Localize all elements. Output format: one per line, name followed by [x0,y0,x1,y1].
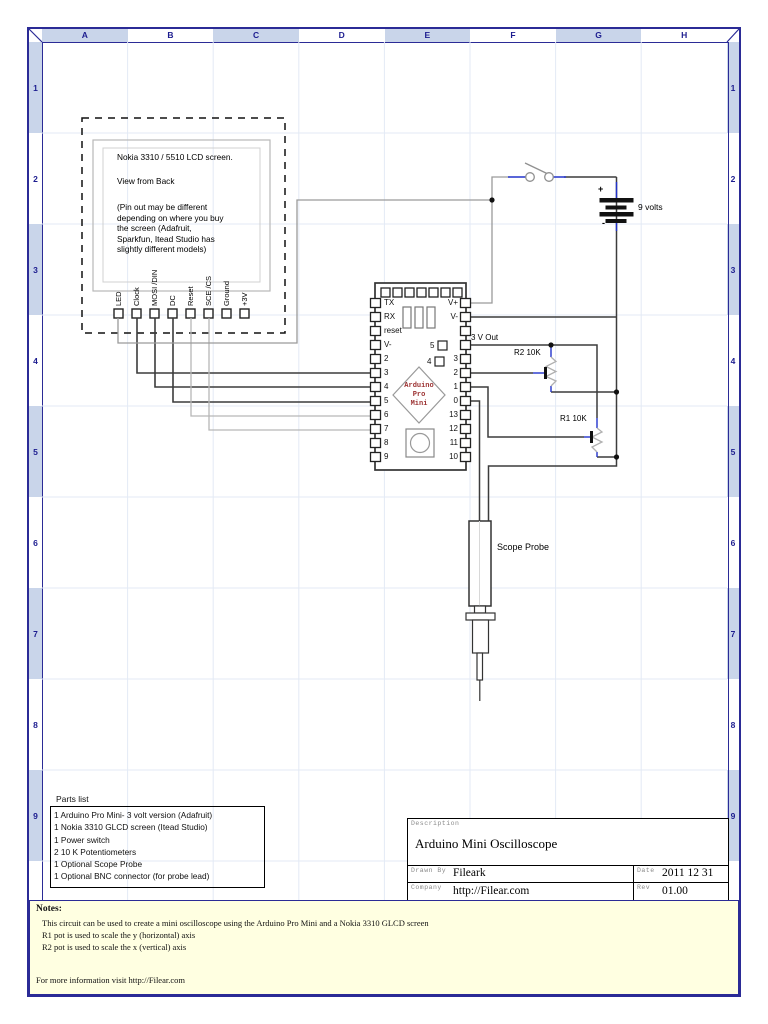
rev-value: 01.00 [662,885,688,897]
notes-lines: This circuit can be used to create a min… [42,917,429,953]
parts-list: 1 Arduino Pro Mini- 3 volt version (Adaf… [50,806,265,888]
company-value: http://Filear.com [453,885,529,897]
lcd-pin-label: Reset [186,246,196,306]
corner-diagonals [29,29,739,42]
date-label: Date [637,867,655,874]
arduino-pin-label: V- [375,310,458,324]
rev-label: Rev [637,884,650,891]
potentiometer-r1 [592,428,602,452]
arduino-pin-label: 13 [375,408,458,422]
lcd-pin-label: LED [114,246,124,306]
lcd-pin-label: +3V [240,246,250,306]
lcd-pin-label: Ground [222,246,232,306]
lcd-subtitle: View from Back [117,176,265,187]
scope-probe-label: Scope Probe [497,542,549,552]
battery-minus: - [602,218,605,228]
lcd-pin-label: MOSI /DIN [150,246,160,306]
r1-label: R1 10K [560,414,587,423]
notes-line: This circuit can be used to create a min… [42,917,429,929]
arduino-pin-label: 12 [375,422,458,436]
wire-dark-right [471,177,617,521]
description-label: Description [411,820,459,827]
arduino-pin-label [375,338,458,352]
notes-footer: For more information visit http://Filear… [36,975,185,985]
drawn-by-value: Fileark [453,867,486,879]
drawn-by-cell: Drawn By Fileark [408,865,634,882]
lcd-pin-label: Clock [132,246,142,306]
arduino-pin-label: 11 [375,436,458,450]
notes-line: R2 pot is used to scale the x (vertical)… [42,941,429,953]
v-out-label: 3 V Out [471,333,498,342]
junction-dots [489,197,619,459]
r2-label: R2 10K [514,348,541,357]
arduino-pin-label: 10 [375,450,458,464]
description-cell: Description Arduino Mini Oscilloscope [408,819,728,865]
rev-cell: Rev 01.00 [634,882,728,900]
battery-plus: + [598,184,603,194]
date-value: 2011 12 31 [662,867,713,879]
parts-list-item: 2 10 K Potentiometers [51,846,264,858]
schematic-page: ABCDEFGH 123456789 123456789 [0,0,768,1024]
parts-list-item: 1 Power switch [51,834,264,846]
lcd-title: Nokia 3310 / 5510 LCD screen. [117,152,265,163]
arduino-pin-label: 3 [375,352,458,366]
arduino-right-pin-labels: V+V-321013121110 [375,296,458,464]
power-switch-icon [525,163,553,181]
lcd-description: Nokia 3310 / 5510 LCD screen. View from … [117,152,265,255]
date-cell: Date 2011 12 31 [634,865,728,882]
parts-list-item: 1 Optional BNC connector (for probe lead… [51,870,264,882]
potentiometer-r2 [546,357,556,386]
notes-panel: Notes: This circuit can be used to creat… [29,900,739,995]
parts-list-item: 1 Nokia 3310 GLCD screen (Itead Studio) [51,821,264,833]
notes-line: R1 pot is used to scale the y (horizonta… [42,929,429,941]
arduino-pin-label: V+ [375,296,458,310]
drawn-by-label: Drawn By [411,867,446,874]
arduino-inner-pin-label-4: 4 [427,357,431,366]
description-value: Arduino Mini Oscilloscope [415,836,557,852]
wire-lcd-data [137,318,371,402]
parts-list-item: 1 Arduino Pro Mini- 3 volt version (Adaf… [51,807,264,821]
lcd-pin-label: SCE /CS [204,246,214,306]
title-block: Description Arduino Mini Oscilloscope Dr… [407,818,729,901]
arduino-pin-label [375,324,458,338]
company-cell: Company http://Filear.com [408,882,634,900]
wire-lcd-control [191,318,371,430]
parts-list-title: Parts list [56,794,89,804]
chip-name: Arduino Pro Mini [393,382,445,409]
company-label: Company [411,884,442,891]
battery-label: 9 volts [638,202,663,212]
notes-heading: Notes: [36,904,62,914]
lcd-pin-label: DC [168,246,178,306]
arduino-inner-pin-label-5: 5 [430,341,434,350]
arduino-pin-label: 2 [375,366,458,380]
parts-list-item: 1 Optional Scope Probe [51,858,264,870]
lcd-pin-squares [114,309,249,318]
